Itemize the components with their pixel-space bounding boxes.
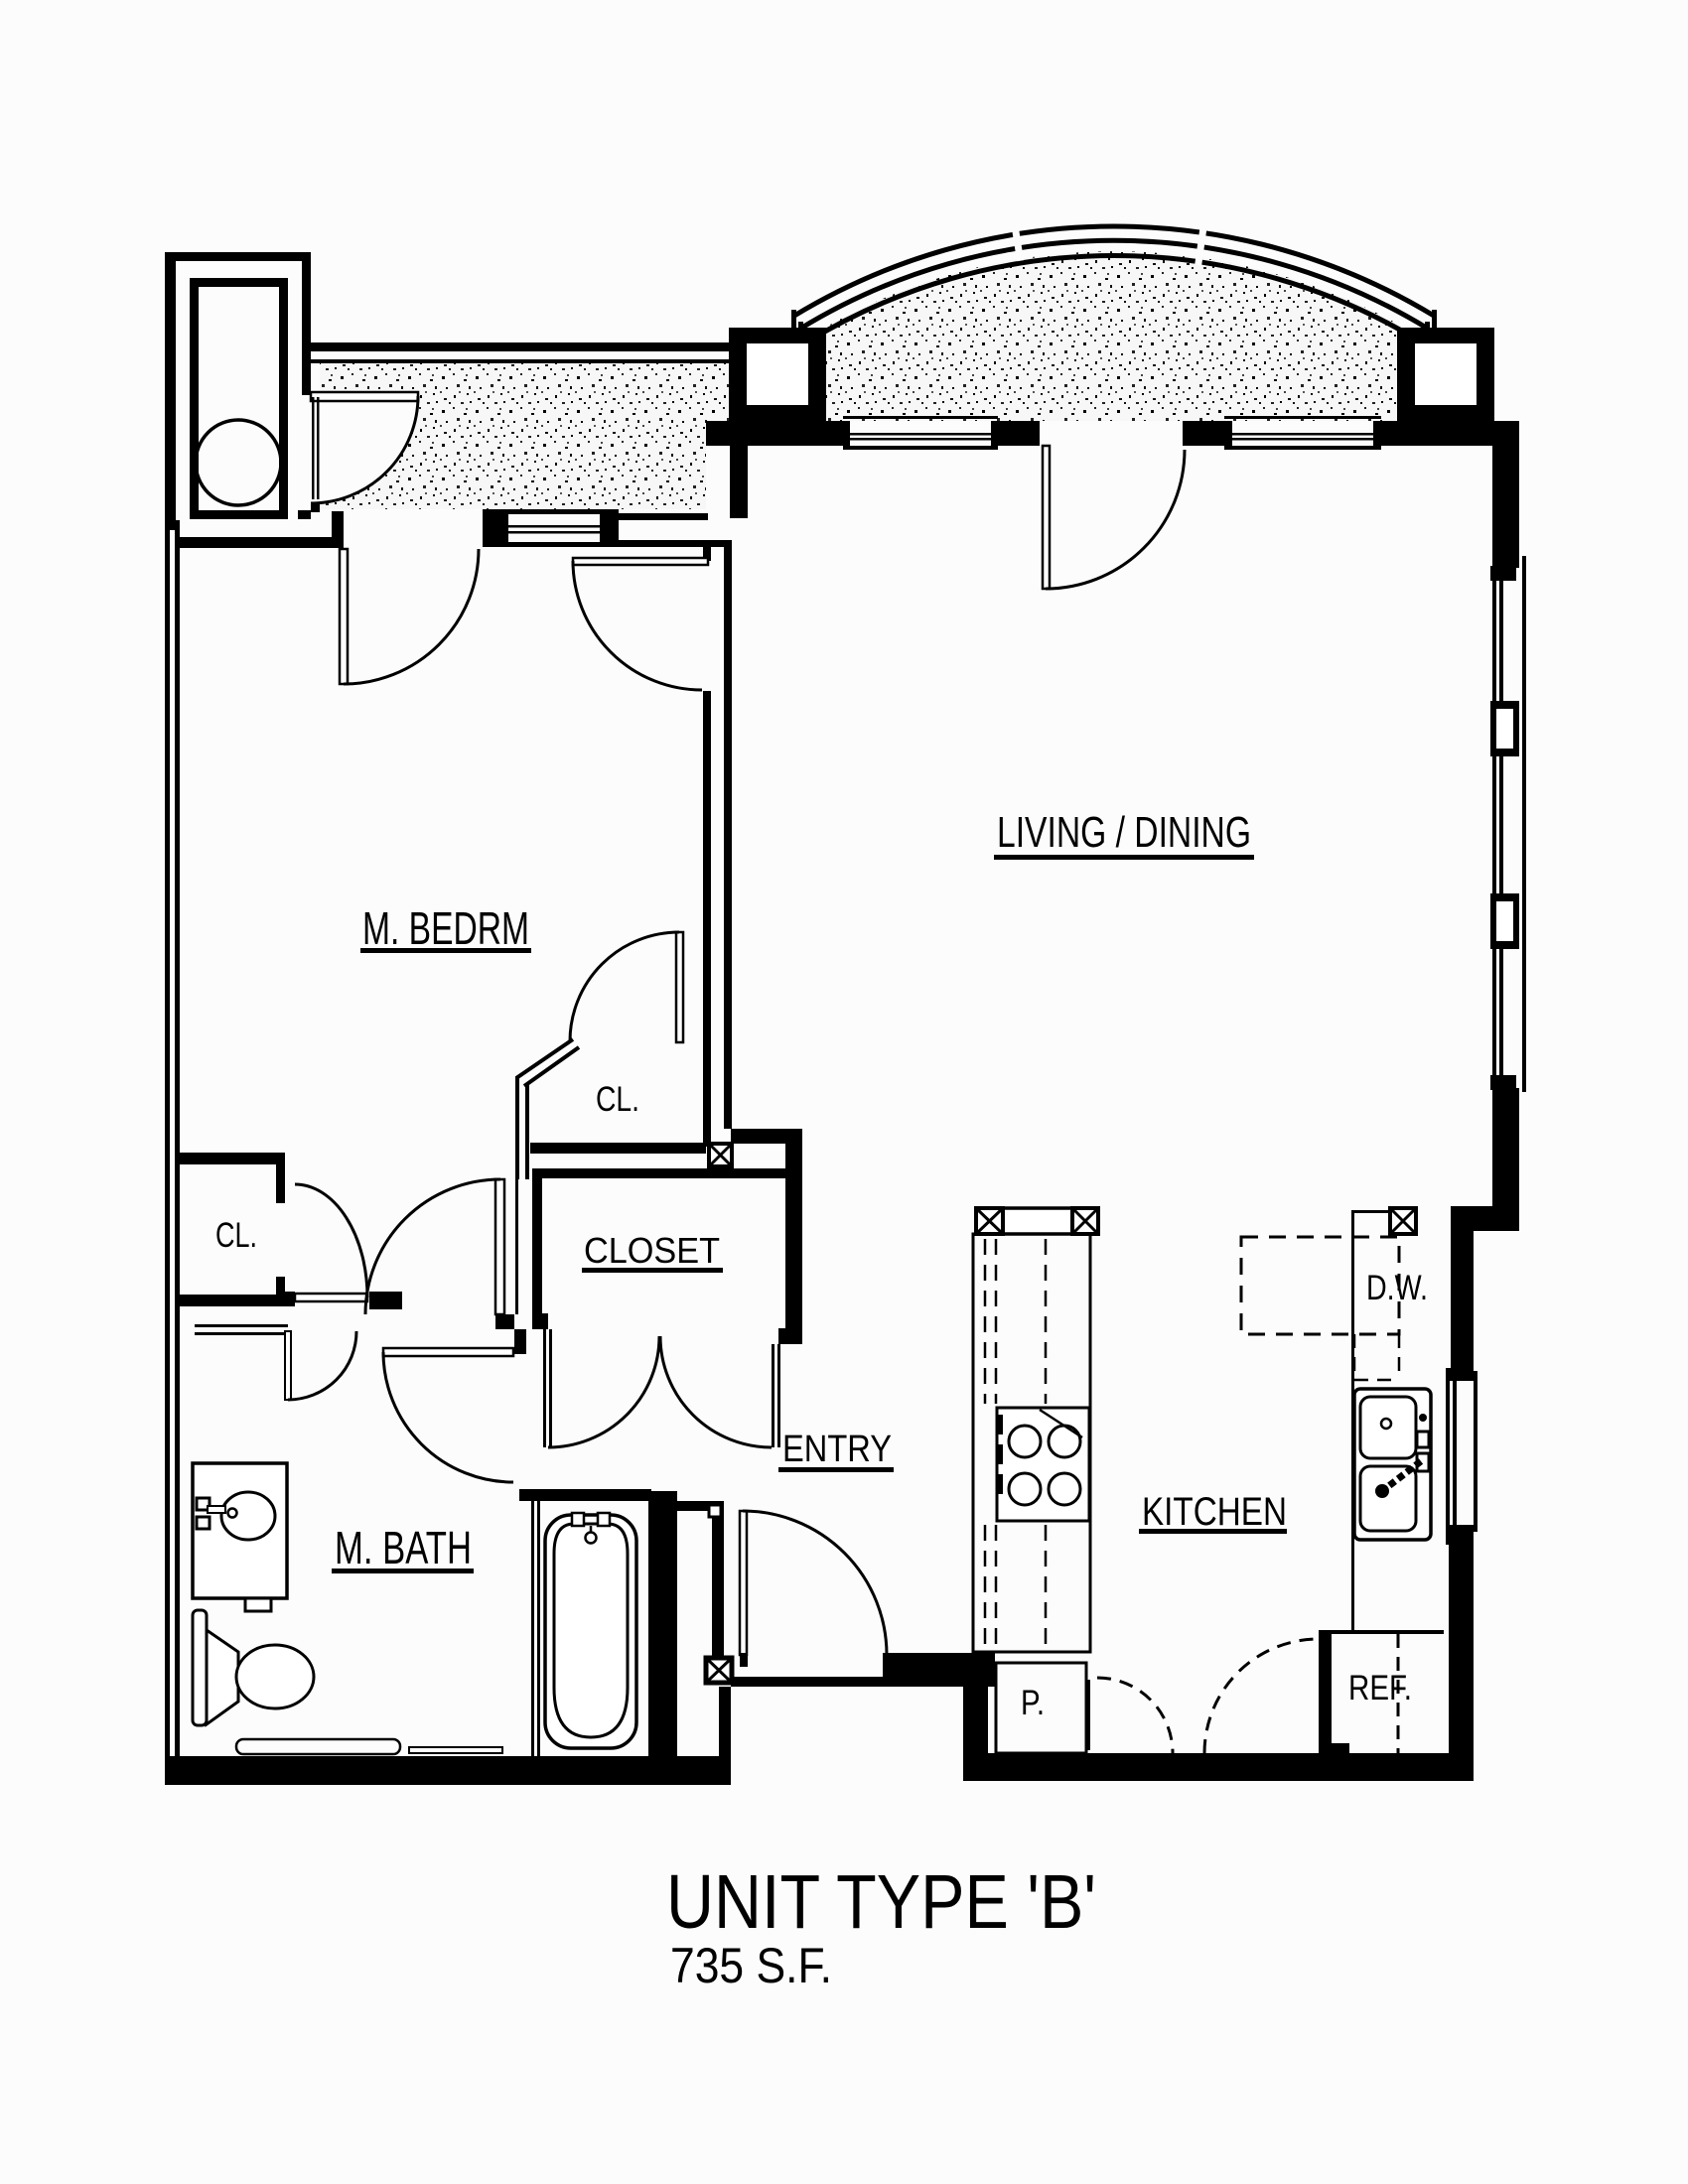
svg-text:P.: P. — [1021, 1684, 1045, 1722]
svg-text:CL.: CL. — [215, 1216, 257, 1255]
svg-text:M. BEDRM: M. BEDRM — [362, 902, 529, 954]
svg-text:M. BATH: M. BATH — [335, 1522, 472, 1573]
svg-text:KITCHEN: KITCHEN — [1142, 1490, 1287, 1534]
svg-text:LIVING / DINING: LIVING / DINING — [997, 808, 1251, 857]
svg-text:735 S.F.: 735 S.F. — [670, 1938, 832, 1993]
svg-text:ENTRY: ENTRY — [782, 1429, 892, 1470]
svg-text:REF.: REF. — [1348, 1669, 1412, 1707]
svg-text:UNIT TYPE 'B': UNIT TYPE 'B' — [666, 1859, 1096, 1945]
svg-text:D.W.: D.W. — [1366, 1269, 1428, 1307]
svg-text:CLOSET: CLOSET — [584, 1230, 720, 1271]
svg-text:CL.: CL. — [596, 1080, 639, 1119]
